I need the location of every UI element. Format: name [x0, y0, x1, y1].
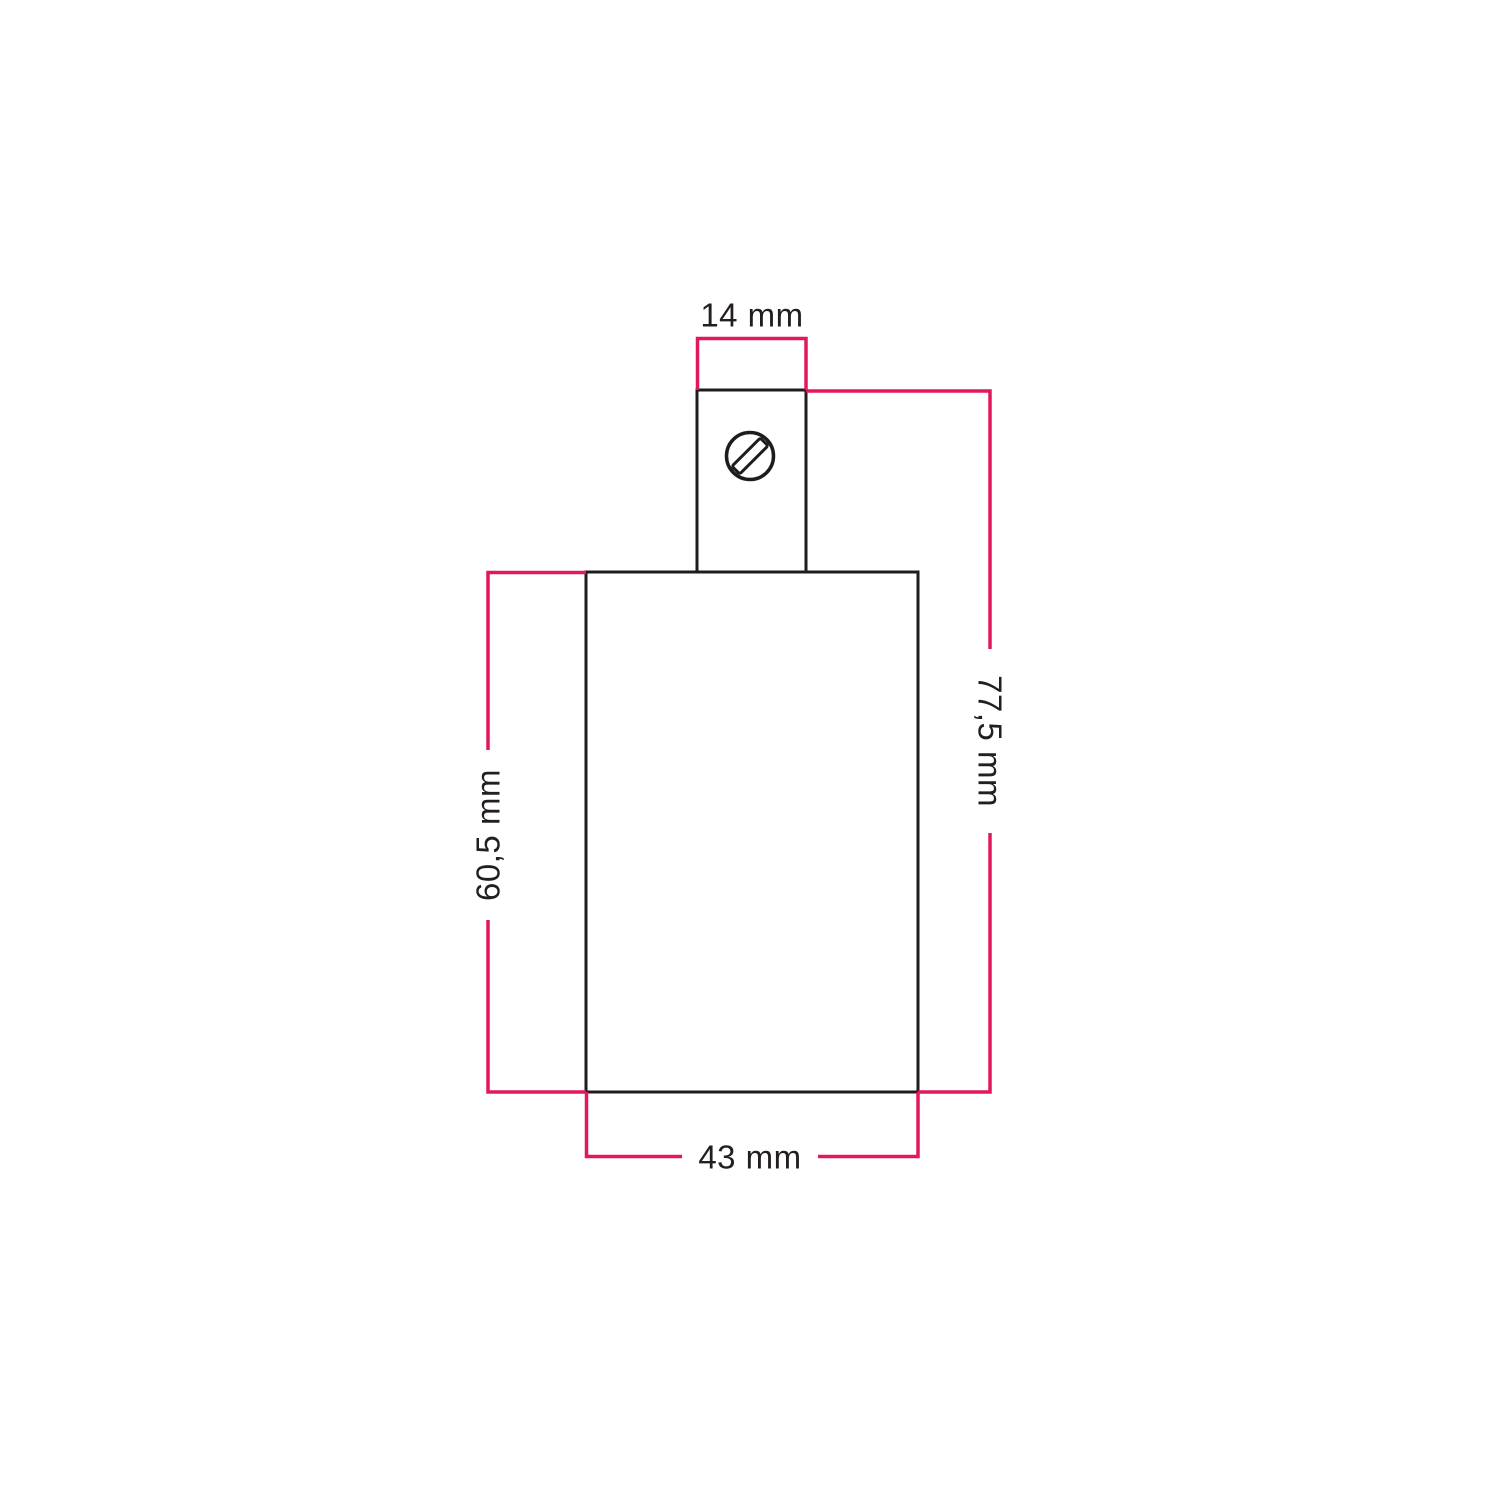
dimension-diagram: 14 mm 77,5 mm 60,5 mm 43 mm	[0, 0, 1500, 1500]
body-width-label: 43 mm	[698, 1139, 801, 1176]
dimension-diagram-canvas: 14 mm 77,5 mm 60,5 mm 43 mm	[0, 0, 1500, 1500]
total-height-line-lower	[918, 833, 990, 1092]
body-width-bracket-right	[818, 1092, 918, 1157]
body-width-bracket-left	[587, 1092, 683, 1157]
total-height-label: 77,5 mm	[972, 675, 1009, 807]
body-outline	[586, 572, 918, 1092]
grip-width-label: 14 mm	[700, 297, 803, 334]
grip-width-bracket	[698, 339, 807, 391]
body-height-line-upper	[488, 573, 586, 751]
body-height-line-lower	[488, 920, 586, 1092]
part-outline	[586, 390, 918, 1092]
body-height-label: 60,5 mm	[470, 769, 507, 901]
